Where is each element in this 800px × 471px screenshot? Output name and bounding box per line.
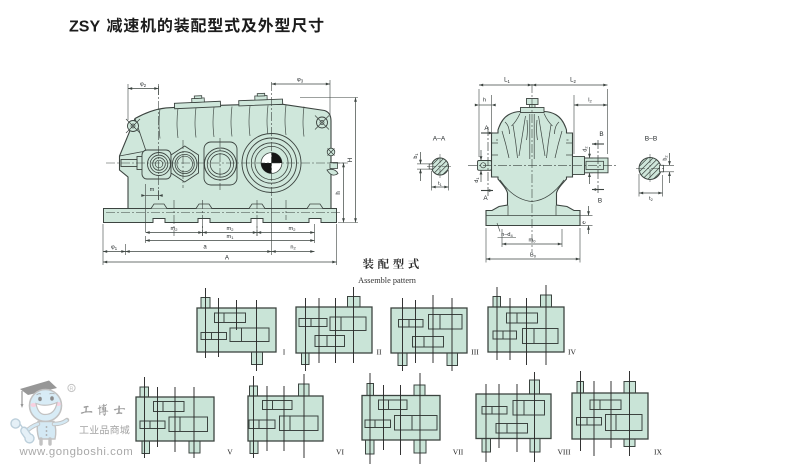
svg-text:L1: L1 <box>504 78 510 84</box>
svg-text:φ3: φ3 <box>297 77 304 83</box>
svg-text:A–A: A–A <box>433 136 446 143</box>
svg-text:d1: d1 <box>474 177 480 182</box>
svg-text:III: III <box>471 348 479 357</box>
svg-text:h: h <box>336 191 342 194</box>
svg-text:m0: m0 <box>529 238 537 244</box>
svg-text:d2: d2 <box>583 146 589 151</box>
svg-text:Assemble pattern: Assemble pattern <box>358 276 417 285</box>
svg-text:II: II <box>376 348 382 357</box>
svg-text:m2: m2 <box>171 226 179 232</box>
svg-text:b1: b1 <box>413 153 419 158</box>
svg-text:IX: IX <box>654 448 663 457</box>
svg-text:VI: VI <box>336 448 344 457</box>
svg-text:B–B: B–B <box>645 136 658 143</box>
svg-text:t1: t1 <box>438 181 442 187</box>
svg-text:φ2: φ2 <box>140 82 147 88</box>
svg-text:t2: t2 <box>649 196 653 202</box>
svg-text:A: A <box>483 195 488 202</box>
svg-text:B0: B0 <box>530 253 537 259</box>
svg-text:V: V <box>227 448 233 457</box>
svg-text:L2: L2 <box>570 78 576 84</box>
svg-text:A: A <box>484 125 489 132</box>
svg-text:m2: m2 <box>289 226 297 232</box>
svg-text:B: B <box>598 198 602 205</box>
svg-text:b2: b2 <box>663 155 669 160</box>
svg-text:B: B <box>599 131 603 138</box>
svg-text:IV: IV <box>568 348 577 357</box>
svg-text:VIII: VIII <box>557 448 571 457</box>
svg-text:VII: VII <box>453 448 464 457</box>
svg-text:m1: m1 <box>227 234 235 240</box>
svg-text:ZSY: ZSY <box>69 19 100 36</box>
svg-text:m2: m2 <box>227 226 235 232</box>
svg-text:H: H <box>347 158 354 162</box>
svg-text:www.gongboshi.com: www.gongboshi.com <box>19 446 134 458</box>
svg-text:e: e <box>582 221 588 224</box>
svg-text:φ1: φ1 <box>111 245 118 251</box>
svg-text:m: m <box>150 187 155 193</box>
svg-text:h: h <box>483 98 486 104</box>
svg-text:R: R <box>70 386 74 392</box>
svg-text:n2: n2 <box>290 245 296 251</box>
